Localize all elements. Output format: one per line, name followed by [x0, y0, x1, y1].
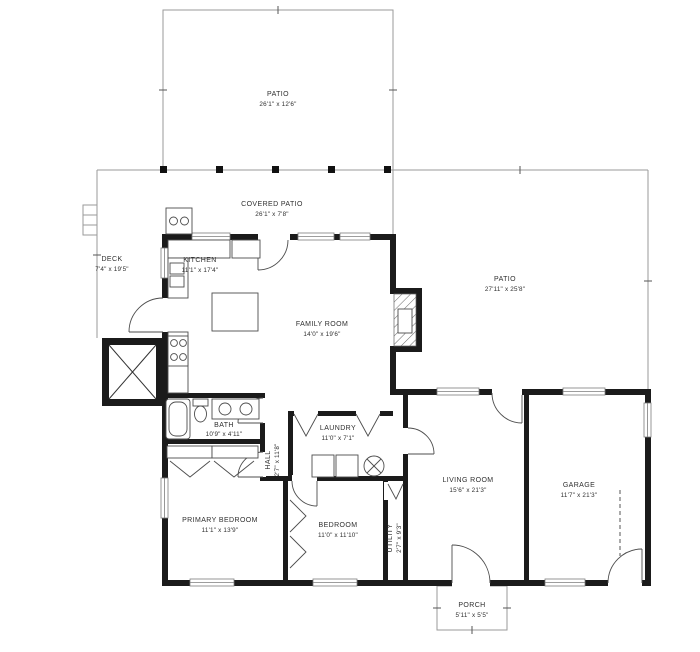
post [272, 166, 279, 173]
room-label-patio-right-dims: 27'11" x 25'8" [485, 286, 525, 293]
deck-steps [83, 205, 97, 235]
vanity-sinks [212, 399, 259, 419]
room-label-patio-right-name: PATIO [494, 276, 516, 283]
room-label-bedroom-dims: 11'0" x 11'10" [318, 532, 358, 539]
room-label-garage-name: GARAGE [563, 482, 595, 489]
laundry-west-wall [288, 411, 293, 481]
washer [312, 455, 334, 477]
water-heater [364, 456, 384, 476]
utility-door-opening [384, 482, 388, 500]
room-label-family-room-name: FAMILY ROOM [296, 321, 348, 328]
window [161, 248, 168, 278]
post [328, 166, 335, 173]
room-label-primary-bedroom-dims: 11'1" x 13'9" [202, 527, 239, 534]
room-label-kitchen-name: KITCHEN [183, 257, 217, 264]
window [545, 579, 585, 586]
room-label-garage-dims: 11'7" x 21'3" [561, 492, 598, 499]
stove [168, 336, 188, 366]
room-label-porch-dims: 5'11" x 5'5" [456, 612, 489, 619]
window [313, 579, 357, 586]
post [160, 166, 167, 173]
room-label-utility-dims: 2'7" x 9'3" [396, 523, 403, 553]
floor-plan-drawing: PATIO 26'1" x 12'6" COVERED PATIO 26'1" … [0, 0, 700, 652]
room-label-utility-name: UTILITY [387, 524, 394, 553]
room-label-covered-patio-name: COVERED PATIO [241, 201, 303, 208]
window [190, 579, 234, 586]
closet-bifold [170, 461, 210, 477]
toilet [193, 399, 208, 422]
closet-bifold [214, 461, 254, 477]
kitchen-island [212, 293, 258, 331]
room-label-laundry-name: LAUNDRY [320, 425, 356, 432]
closet-bifold [290, 500, 306, 532]
room-label-hall-dims: 2'7" x 11'8" [274, 444, 281, 477]
room-label-kitchen-dims: 11'1" x 17'4" [182, 267, 219, 274]
room-label-bath-name: BATH [214, 422, 234, 429]
kitchen-sink [170, 276, 184, 287]
window [192, 233, 230, 240]
door-arc [129, 298, 163, 332]
post [384, 166, 391, 173]
fireplace [390, 288, 422, 352]
dryer [336, 455, 358, 477]
door-arc [258, 240, 288, 270]
laundry-door-opening [356, 410, 380, 417]
kitchen-counter [168, 240, 230, 258]
bath-south-wall [162, 439, 265, 444]
room-label-patio-top-dims: 26'1" x 12'6" [259, 101, 296, 108]
closet-slider [167, 446, 212, 458]
window [340, 233, 370, 240]
closet-slider [212, 446, 258, 458]
room-label-deck-dims: 7'4" x 19'5" [95, 266, 128, 273]
room-label-laundry-dims: 11'0" x 7'1" [322, 435, 355, 442]
patio-door-opening [492, 388, 522, 396]
room-label-primary-bedroom-name: PRIMARY BEDROOM [182, 517, 258, 524]
bifold-door [294, 414, 318, 436]
room-label-porch-name: PORCH [458, 602, 485, 609]
bifold-door [356, 414, 380, 436]
window [563, 388, 605, 395]
kitchen-bath-wall [162, 393, 263, 398]
bathtub [166, 399, 190, 439]
porch-door-opening [452, 579, 490, 587]
room-label-hall-name: HALL [265, 450, 272, 469]
bifold-door [388, 484, 403, 499]
garage-door-opening [608, 579, 642, 587]
floor-plan-page: PATIO 26'1" x 12'6" COVERED PATIO 26'1" … [0, 0, 700, 652]
window [298, 233, 334, 240]
window [437, 388, 479, 395]
door-arc [608, 549, 642, 583]
room-label-family-room-dims: 14'0" x 19'6" [303, 331, 340, 338]
refrigerator [232, 240, 260, 258]
door-arc [452, 545, 490, 583]
chimney [102, 338, 163, 406]
room-label-deck-name: DECK [101, 256, 122, 263]
window [644, 403, 651, 437]
garage-west-wall [524, 389, 529, 586]
patio-top-outline [163, 10, 393, 170]
room-label-patio-top-name: PATIO [267, 91, 289, 98]
family-door-opening [258, 233, 290, 241]
window [161, 478, 168, 518]
post [216, 166, 223, 173]
door-arc [492, 393, 522, 423]
fireplace-wall [393, 346, 422, 352]
closet-bifold [290, 536, 306, 568]
grill [166, 208, 192, 234]
room-label-living-room-name: LIVING ROOM [442, 477, 493, 484]
firebox [398, 309, 412, 333]
door-arc [292, 481, 317, 506]
laundry-fixtures [312, 455, 384, 477]
room-label-bedroom-name: BEDROOM [319, 522, 358, 529]
living-west-wall [403, 393, 408, 586]
room-label-covered-patio-dims: 26'1" x 7'8" [255, 211, 288, 218]
laundry-door-opening [294, 410, 318, 417]
living-door-opening [402, 428, 409, 454]
room-label-bath-dims: 10'9" x 4'11" [206, 431, 243, 438]
room-label-living-room-dims: 15'6" x 21'3" [449, 487, 486, 494]
bath-door-opening [259, 398, 266, 423]
bedroom-west-wall [283, 476, 288, 586]
deck-door-opening [161, 298, 169, 332]
door-arc [408, 428, 434, 454]
fireplace-wall [416, 288, 422, 352]
